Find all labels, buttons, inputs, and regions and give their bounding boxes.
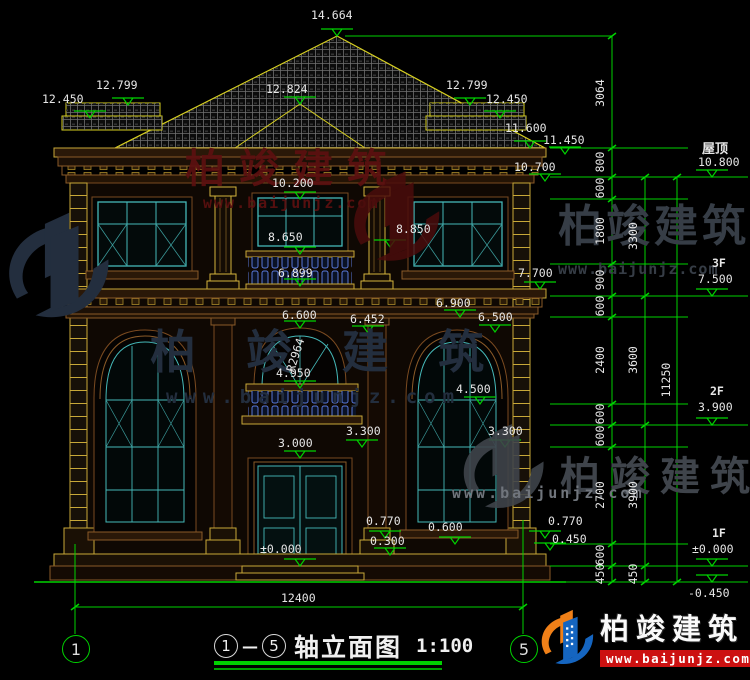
elev-center-head-1f: 3.300 <box>346 424 381 438</box>
floor-elev-3f: 7.500 <box>698 272 733 286</box>
elev-left-wing-eave: 12.450 <box>42 92 84 106</box>
elev-door-head: 3.000 <box>278 436 313 450</box>
dim-inner-0: 3064 <box>593 79 607 107</box>
elev-band-center: 6.899 <box>278 266 313 280</box>
elev-f3-sill-band: 7.700 <box>518 266 553 280</box>
axis-bubble-5: 5 <box>510 635 538 663</box>
dim-mid-2: 3900 <box>626 481 640 509</box>
elev-f3-window-head: 10.200 <box>272 176 314 190</box>
floor-elev-2f: 3.900 <box>698 400 733 414</box>
window-3f-right <box>402 197 514 279</box>
elev-right-head-1f: 3.300 <box>488 424 523 438</box>
elev-center-arch-head: 6.600 <box>282 308 317 322</box>
elev-right-pedestal-base: 0.450 <box>552 532 587 546</box>
elev-center-gable: 12.824 <box>266 82 308 96</box>
dim-mid-0: 3300 <box>626 222 640 250</box>
title-scale: 1:100 <box>416 635 473 657</box>
title-dash: — <box>242 637 258 656</box>
dim-inner-7: 600 <box>593 404 607 425</box>
dim-inner-5: 600 <box>593 296 607 317</box>
dim-inner-4: 900 <box>593 270 607 291</box>
total-width-dim: 12400 <box>281 591 316 605</box>
elev-eave-soffit: 11.450 <box>543 133 585 147</box>
dim-inner-1: 800 <box>593 152 607 173</box>
axis-number: 1 <box>71 640 81 659</box>
elev-right-sill-1f: 0.600 <box>428 520 463 534</box>
company-logo: 柏竣建筑 www.baijunjz.com <box>538 606 750 668</box>
axis-bubble-1: 1 <box>62 635 90 663</box>
floor-elev-1f: ±0.000 <box>692 542 734 556</box>
elev-entry-level: ±0.000 <box>260 542 302 556</box>
dim-inner-10: 600 <box>593 545 607 566</box>
window-3f-left <box>86 197 198 279</box>
elev-main-eave: 11.600 <box>505 121 547 135</box>
elev-roof-peak: 14.664 <box>311 8 353 22</box>
elev-f3-balcony: 8.650 <box>268 230 303 244</box>
title-underline-thick <box>214 661 442 665</box>
elev-band-right: 6.900 <box>436 296 471 310</box>
company-logo-brand: 柏竣建筑 <box>600 606 750 648</box>
elev-center-pedestal-top: 0.770 <box>366 514 401 528</box>
floor-label-1f: 1F <box>712 526 726 540</box>
dim-total-height: 11250 <box>659 363 673 398</box>
elev-right-pedestal-top: 0.770 <box>548 514 583 528</box>
dim-mid-1: 3600 <box>626 346 640 374</box>
elev-left-wing-ridge: 12.799 <box>96 78 138 92</box>
dim-inner-8: 600 <box>593 426 607 447</box>
elev-center-pedestal-base: 0.300 <box>370 534 405 548</box>
title-axis-start-bubble: 1 <box>214 634 238 658</box>
elev-f3-column-base: 8.850 <box>396 222 431 236</box>
elev-right-wing-eave: 12.450 <box>486 92 528 106</box>
company-logo-icon <box>538 606 596 668</box>
dim-mid-3: 450 <box>626 564 640 585</box>
cad-elevation-screenshot: 柏竣建筑 www.baijunjz.com 柏竣建筑 www.baijunjz.… <box>0 0 750 680</box>
floor-label-2f: 2F <box>710 384 724 398</box>
window-1f-left <box>88 330 202 540</box>
elev-capital-top: 6.452 <box>350 312 385 326</box>
floor-label-3f: 3F <box>712 256 726 270</box>
company-logo-url: www.baijunjz.com <box>600 650 750 667</box>
dim-inner-9: 2700 <box>593 481 607 509</box>
base-course <box>34 554 566 582</box>
drawing-title: 1 — 5 轴立面图 1:100 <box>214 628 473 664</box>
floor-elev-roof: 10.800 <box>698 155 740 169</box>
elev-right-mid-sill: 4.500 <box>456 382 491 396</box>
elev-right-arch-head: 6.500 <box>478 310 513 324</box>
axis-number: 5 <box>519 640 529 659</box>
title-underline-thin <box>214 668 442 670</box>
elev-right-wing-ridge: 12.799 <box>446 78 488 92</box>
balcony-2f <box>242 384 362 424</box>
dim-inner-2: 600 <box>593 178 607 199</box>
floor-elev-ground: -0.450 <box>688 586 730 600</box>
elev-cornice-bottom: 10.700 <box>514 160 556 174</box>
title-axis-end-bubble: 5 <box>262 634 286 658</box>
dim-inner-11: 450 <box>593 564 607 585</box>
dim-inner-6: 2400 <box>593 346 607 374</box>
title-name: 轴立面图 <box>294 628 402 664</box>
dim-inner-3: 1800 <box>593 217 607 245</box>
